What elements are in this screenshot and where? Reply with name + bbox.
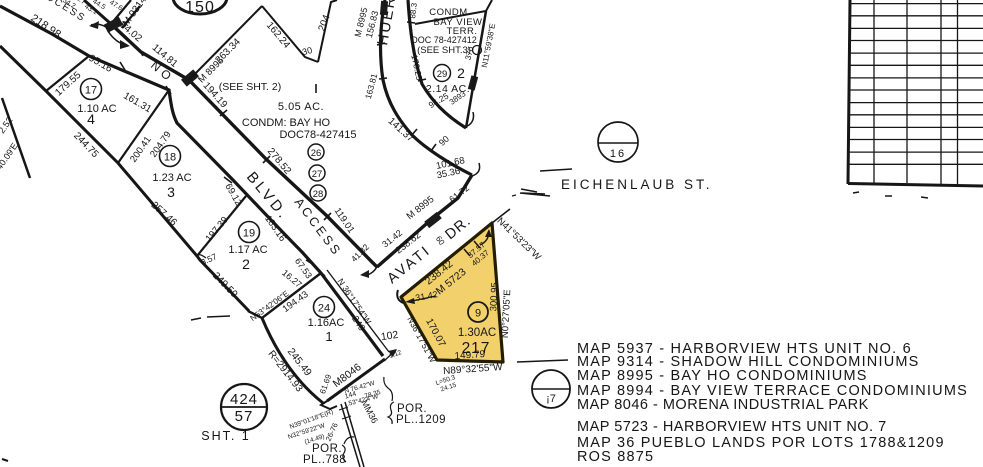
svg-text:2: 2	[457, 65, 465, 81]
svg-text:SHT. 1: SHT. 1	[201, 429, 251, 443]
svg-text:16: 16	[610, 148, 626, 160]
svg-text:1: 1	[325, 329, 332, 344]
svg-text:17: 17	[85, 85, 97, 97]
svg-text:1.10 AC: 1.10 AC	[77, 103, 116, 115]
svg-text:5.05 AC.: 5.05 AC.	[278, 101, 324, 113]
svg-text:28: 28	[313, 189, 324, 200]
svg-text:9: 9	[475, 308, 481, 320]
svg-text:150: 150	[185, 0, 215, 16]
svg-text:102: 102	[380, 329, 399, 343]
svg-text:3: 3	[167, 184, 175, 200]
svg-text:2: 2	[242, 256, 250, 272]
svg-text:DOC78-427415: DOC78-427415	[279, 129, 356, 141]
svg-text:¡7: ¡7	[546, 393, 556, 405]
svg-text:57: 57	[235, 408, 254, 425]
svg-text:27: 27	[312, 169, 323, 180]
svg-text:300.95: 300.95	[488, 282, 501, 312]
svg-text:MAP 8046 - MORENA INDUSTRIA: MAP 8046 - MORENA INDUSTRIAL PARK	[577, 397, 869, 413]
svg-text:ROS 8875: ROS 8875	[577, 449, 654, 465]
svg-text:CONDM: BAY HO: CONDM: BAY HO	[242, 117, 331, 129]
svg-text:PL..1209: PL..1209	[396, 414, 446, 426]
svg-text:29: 29	[437, 69, 448, 80]
svg-text:DOC 78-427412: DOC 78-427412	[411, 35, 477, 45]
svg-text:(SEE SHT. 2): (SEE SHT. 2)	[219, 81, 281, 93]
svg-text:1.16AC: 1.16AC	[308, 317, 345, 329]
svg-text:149.79: 149.79	[454, 349, 486, 362]
svg-text:(SEE SHT.3): (SEE SHT.3)	[417, 45, 471, 56]
svg-text:24: 24	[318, 303, 330, 315]
svg-text:424: 424	[230, 391, 258, 408]
svg-text:4: 4	[87, 111, 95, 127]
svg-text:1.30AC: 1.30AC	[458, 327, 496, 339]
svg-text:19: 19	[243, 228, 255, 240]
svg-text:88.3: 88.3	[408, 2, 419, 19]
svg-text:26: 26	[311, 148, 322, 159]
svg-text:EICHENLAUB ST.: EICHENLAUB ST.	[561, 177, 713, 192]
svg-text:1.23 AC: 1.23 AC	[152, 172, 191, 184]
svg-text:PL..788: PL..788	[303, 454, 346, 466]
svg-text:18: 18	[164, 152, 176, 164]
svg-text:MAP 5723 - HARBORVIEW HTS UN: MAP 5723 - HARBORVIEW HTS UNIT NO. 7	[577, 419, 887, 435]
svg-text:MAP 8995 - BAY HO CONDOMINI: MAP 8995 - BAY HO CONDOMINIUMS	[577, 368, 868, 384]
svg-text:1.17 AC: 1.17 AC	[228, 244, 267, 256]
